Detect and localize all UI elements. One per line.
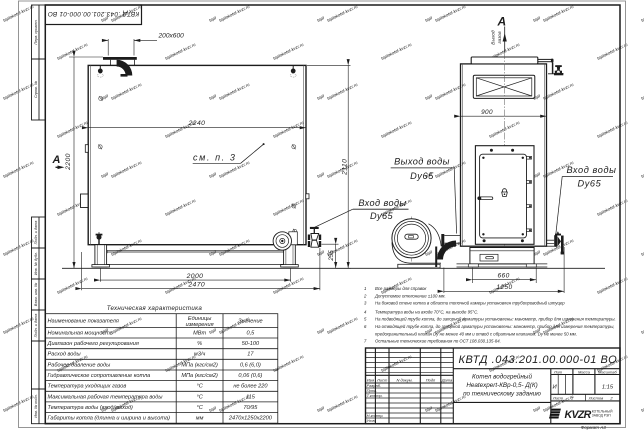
svg-text:0,5: 0,5 xyxy=(247,330,256,336)
svg-text:0,06 (0,6): 0,06 (0,6) xyxy=(238,373,262,379)
svg-text:Листов: Листов xyxy=(588,396,604,401)
svg-text:70/95: 70/95 xyxy=(243,405,258,411)
svg-text:2470: 2470 xyxy=(187,282,205,289)
svg-text:Габариты котла (длинна и ширин: Габариты котла (длинна и ширина и высота… xyxy=(48,416,171,422)
svg-text:Рабочее давление воды: Рабочее давление воды xyxy=(48,362,111,368)
svg-text:Вход воды: Вход воды xyxy=(358,198,406,208)
svg-text:Температура воды на входе 70°: Температура воды на входе 70°С, на выход… xyxy=(375,309,478,314)
svg-text:Остальные технические требован: Остальные технические требования по ОСТ … xyxy=(375,339,501,344)
svg-text:1: 1 xyxy=(571,396,573,401)
svg-text:не более 220: не более 220 xyxy=(233,384,268,390)
svg-text:Формат А3: Формат А3 xyxy=(581,425,607,430)
svg-text:1250: 1250 xyxy=(496,284,512,291)
svg-text:Максимальная рабочая температу: Максимальная рабочая температура воды xyxy=(48,394,163,400)
svg-text:Инв. № дубл.: Инв. № дубл. xyxy=(34,252,38,275)
svg-text:Утв.: Утв. xyxy=(367,418,376,423)
svg-text:измерения: измерения xyxy=(186,322,214,328)
svg-text:1:15: 1:15 xyxy=(602,385,614,391)
svg-text:Допустимое отклонение ±100 мм: Допустимое отклонение ±100 мм. xyxy=(374,293,446,298)
svg-text:900: 900 xyxy=(481,109,493,116)
svg-text:МПа (кгс/см2): МПа (кгс/см2) xyxy=(181,362,218,368)
svg-text:°С: °С xyxy=(196,405,203,411)
svg-text:Наименование показателя: Наименование показателя xyxy=(48,319,119,325)
svg-text:А: А xyxy=(497,14,507,28)
svg-text:предохранительный клапан Dу н: предохранительный клапан Dу не менее 40 … xyxy=(375,331,577,336)
svg-text:см. п. 3: см. п. 3 xyxy=(193,152,236,162)
svg-text:Диапазон рабочего регулировани: Диапазон рабочего регулирования xyxy=(47,341,139,347)
svg-text:Подп: Подп xyxy=(426,378,436,383)
svg-text:На отводящей трубе котла, до з: На отводящей трубе котла, до запорной ар… xyxy=(375,324,615,329)
svg-text:°С: °С xyxy=(196,394,203,400)
svg-text:Подп. и дата: Подп. и дата xyxy=(34,314,38,338)
svg-text:2110: 2110 xyxy=(342,159,349,176)
svg-text:мм: мм xyxy=(196,416,204,422)
svg-text:Dy65: Dy65 xyxy=(370,211,394,221)
svg-text:Значение: Значение xyxy=(238,319,263,325)
svg-text:Лист: Лист xyxy=(552,396,564,401)
svg-text:КВТД .043.201.00.000-01 ВО: КВТД .043.201.00.000-01 ВО xyxy=(459,354,618,366)
svg-text:Масса: Масса xyxy=(578,369,591,374)
svg-text:Инв. № подл.: Инв. № подл. xyxy=(34,394,38,418)
svg-text:Дата: Дата xyxy=(441,378,453,383)
svg-text:Подп. и дата: Подп. и дата xyxy=(34,221,38,245)
svg-text:17: 17 xyxy=(247,352,254,358)
svg-text:Котел водогрейный: Котел водогрейный xyxy=(472,373,532,381)
svg-text:Выход: Выход xyxy=(490,30,496,45)
svg-text:Номинальная мощность: Номинальная мощность xyxy=(48,330,113,336)
svg-text:МВт: МВт xyxy=(193,330,206,336)
svg-text:Справ. №: Справ. № xyxy=(34,81,38,98)
svg-text:Вход воды: Вход воды xyxy=(567,165,617,175)
svg-text:Техническая характеристика: Техническая характеристика xyxy=(107,305,203,312)
svg-text:Гидравлическое сопротивление к: Гидравлическое сопротивление котла xyxy=(48,373,151,379)
svg-text:Температура уходящих газов: Температура уходящих газов xyxy=(48,384,127,390)
svg-text:2470х1250х2200: 2470х1250х2200 xyxy=(228,416,273,422)
svg-text:Масштаб: Масштаб xyxy=(598,369,617,374)
svg-text:Dy65: Dy65 xyxy=(410,171,434,181)
svg-text:Расход воды: Расход воды xyxy=(48,352,81,358)
svg-text:КВТД .043.201.00.000-01 ВО: КВТД .043.201.00.000-01 ВО xyxy=(48,10,140,17)
svg-text:50-100: 50-100 xyxy=(242,341,260,347)
svg-text:м3/ч: м3/ч xyxy=(194,352,205,358)
svg-text:Dy65: Dy65 xyxy=(577,179,601,189)
svg-text:Взам. инв. №: Взам. инв. № xyxy=(34,283,38,306)
svg-text:Температура воды (вход/выход): Температура воды (вход/выход) xyxy=(48,405,134,411)
svg-text:°С: °С xyxy=(196,384,203,390)
svg-text:Heatexpert-КВр-0,5- Д(К): Heatexpert-КВр-0,5- Д(К) xyxy=(466,382,537,389)
svg-text:ЗАВОД РЭП: ЗАВОД РЭП xyxy=(592,414,611,418)
svg-text:МПа (кгс/см2): МПа (кгс/см2) xyxy=(181,373,218,379)
svg-text:115: 115 xyxy=(246,394,256,400)
svg-text:2240: 2240 xyxy=(188,120,206,127)
svg-text:На боковой стене котла в облас: На боковой стене котла в области топочно… xyxy=(375,301,565,306)
svg-text:газов: газов xyxy=(498,31,503,44)
svg-text:Все размеры для справок: Все размеры для справок xyxy=(375,286,427,291)
svg-text:200х600: 200х600 xyxy=(158,33,185,40)
svg-text:Т.контр.: Т.контр. xyxy=(367,393,383,398)
svg-text:по техническому заданию: по техническому заданию xyxy=(463,390,541,398)
svg-text:2200: 2200 xyxy=(65,153,72,171)
svg-text:660: 660 xyxy=(497,273,509,280)
svg-text:255: 255 xyxy=(328,250,335,262)
svg-text:Лист: Лист xyxy=(376,378,388,383)
svg-text:KVZR: KVZR xyxy=(565,409,592,421)
svg-text:Изм: Изм xyxy=(367,378,375,383)
svg-text:2000: 2000 xyxy=(186,273,204,280)
svg-text:%: % xyxy=(197,341,202,347)
svg-text:А: А xyxy=(52,154,61,166)
svg-text:На подводящей трубе котла, до: На подводящей трубе котла, до запорной а… xyxy=(375,317,616,322)
svg-text:N докум.: N докум. xyxy=(397,378,413,383)
svg-text:Лит: Лит xyxy=(553,369,563,374)
svg-text:Выход воды: Выход воды xyxy=(394,156,450,166)
svg-text:Перв. примен.: Перв. примен. xyxy=(34,19,38,44)
svg-text:0,6 (6,0): 0,6 (6,0) xyxy=(240,362,261,368)
